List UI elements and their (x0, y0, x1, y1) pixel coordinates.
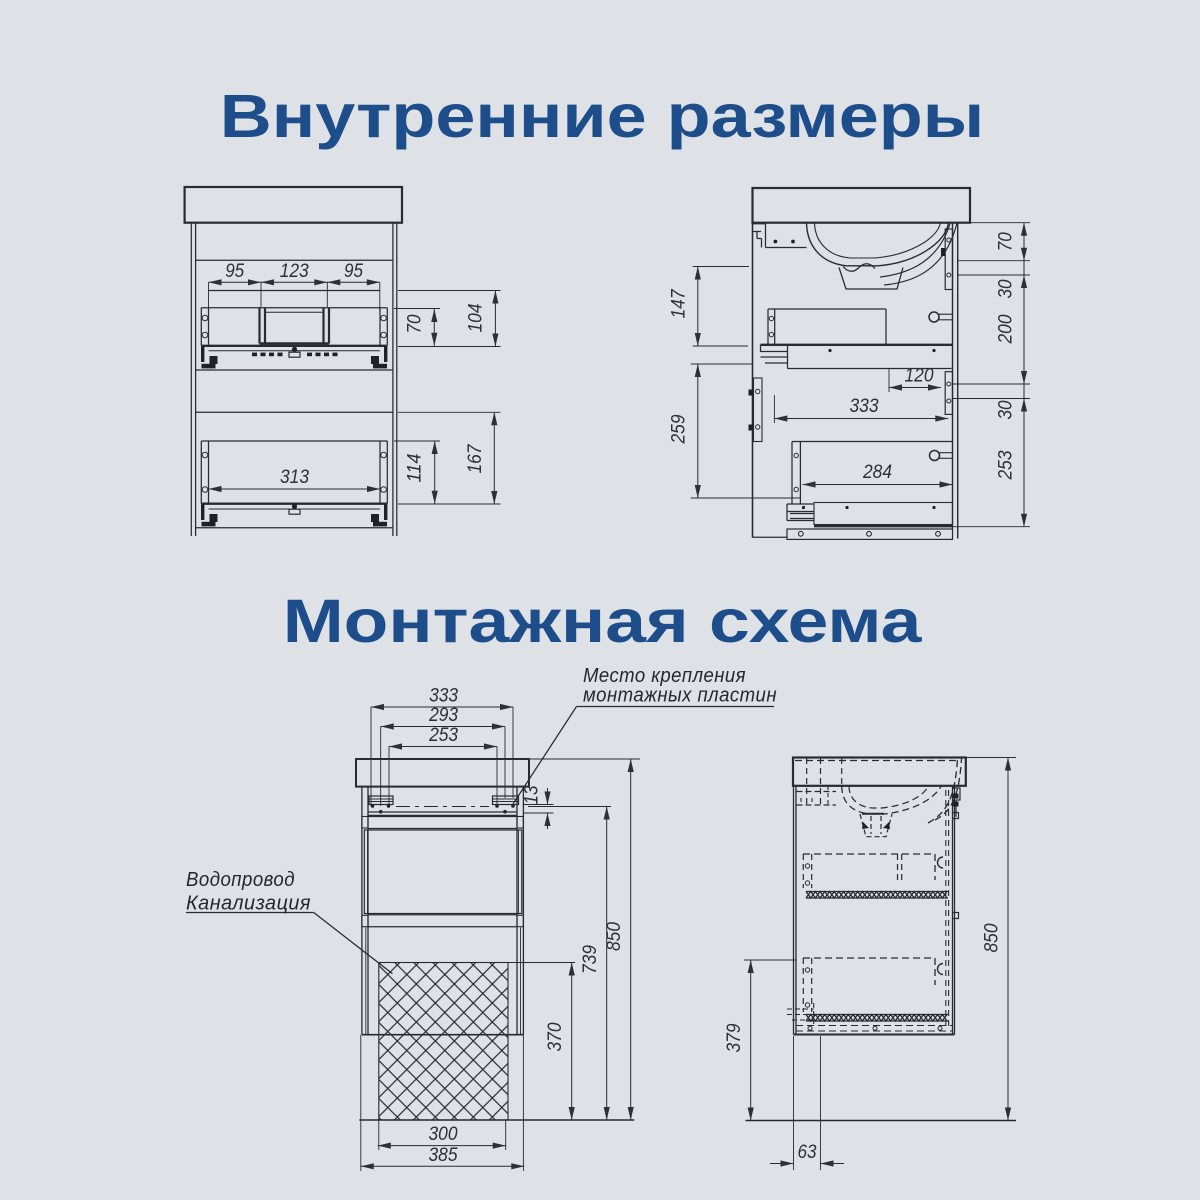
svg-text:147: 147 (668, 288, 690, 318)
svg-text:313: 313 (280, 466, 309, 488)
svg-text:167: 167 (464, 443, 486, 473)
svg-text:333: 333 (850, 395, 879, 417)
svg-text:114: 114 (404, 453, 426, 482)
svg-text:259: 259 (668, 414, 690, 444)
svg-text:385: 385 (429, 1144, 458, 1166)
svg-text:293: 293 (428, 704, 458, 726)
svg-text:253: 253 (428, 724, 458, 746)
svg-text:30: 30 (995, 279, 1017, 298)
svg-text:Канализация: Канализация (186, 892, 311, 915)
svg-text:379: 379 (723, 1023, 745, 1052)
svg-text:70: 70 (404, 314, 426, 333)
svg-text:70: 70 (995, 232, 1017, 251)
svg-text:104: 104 (465, 303, 487, 332)
svg-text:монтажных пластин: монтажных пластин (583, 684, 777, 707)
svg-text:123: 123 (280, 260, 309, 282)
svg-text:370: 370 (544, 1022, 566, 1051)
svg-text:850: 850 (981, 923, 1003, 952)
svg-text:13: 13 (521, 785, 543, 804)
svg-text:200: 200 (995, 314, 1017, 344)
svg-text:63: 63 (798, 1141, 817, 1163)
svg-text:120: 120 (905, 365, 934, 387)
svg-text:Водопровод: Водопровод (186, 868, 295, 891)
svg-text:95: 95 (225, 260, 244, 282)
svg-text:300: 300 (429, 1123, 458, 1145)
svg-text:253: 253 (995, 450, 1017, 480)
svg-text:30: 30 (995, 400, 1017, 419)
svg-text:850: 850 (603, 922, 625, 951)
svg-text:95: 95 (344, 260, 363, 282)
svg-text:739: 739 (579, 945, 601, 974)
svg-text:284: 284 (862, 461, 892, 483)
